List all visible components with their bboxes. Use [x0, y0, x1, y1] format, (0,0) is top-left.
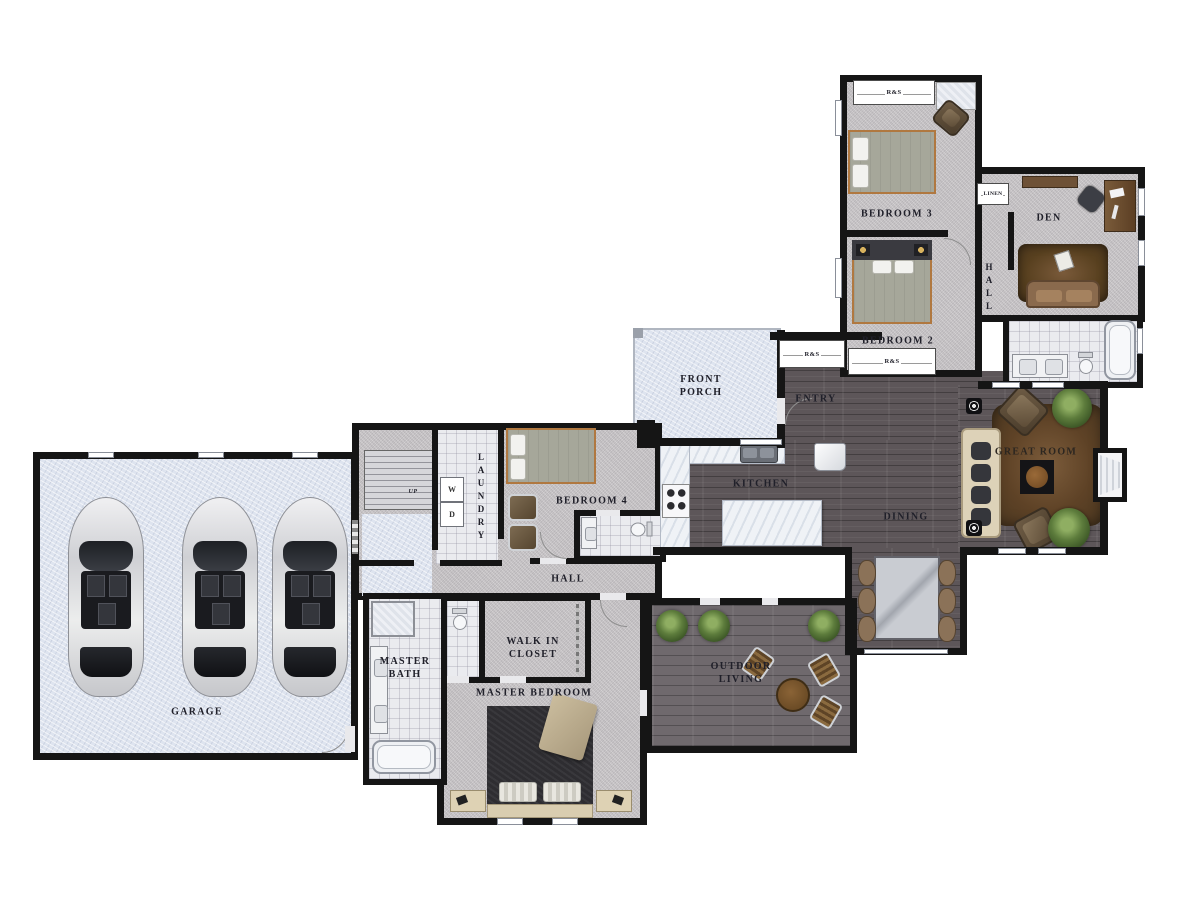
dining-chair — [858, 588, 876, 614]
entry-label: ENTRY — [795, 394, 836, 405]
floor-plan: W D — [0, 0, 1200, 900]
garage-vent2 — [198, 452, 224, 458]
floor-outlet — [966, 520, 982, 536]
outdoor-opening2 — [762, 598, 778, 605]
car-seat — [223, 575, 241, 597]
garage-label: GARAGE — [171, 707, 223, 718]
plant — [1048, 508, 1090, 550]
master-outdoor-door — [640, 690, 647, 716]
headboard-sconce — [914, 244, 928, 256]
master-bedroom-door — [600, 593, 626, 600]
bed-pillow — [510, 434, 526, 456]
upper-bath-sink1 — [1019, 359, 1037, 375]
dining-chair — [858, 560, 876, 586]
bed-pillow — [852, 164, 869, 188]
hall-bath-toilet — [631, 522, 653, 537]
desk-item — [1111, 205, 1118, 220]
bedroom3-closet: R&S — [853, 80, 935, 105]
car-seat — [98, 603, 116, 625]
sofa-cushion — [971, 464, 991, 482]
car-seat — [109, 575, 127, 597]
linen-label: LINEN — [983, 191, 1004, 197]
front-porch-label: FRONT PORCH — [672, 373, 730, 399]
dryer: D — [440, 502, 464, 527]
mud-hall-floor — [362, 514, 432, 596]
dining-right-wall — [960, 547, 967, 655]
nightstand-item — [456, 795, 468, 806]
closet-rod — [576, 604, 579, 674]
car-seat — [212, 603, 230, 625]
hall-bath-sink — [585, 527, 597, 541]
laundry-label: LAUNDRY — [476, 452, 486, 543]
master-headboard — [487, 804, 593, 818]
staircase — [364, 450, 434, 510]
great-room-bottom-wall — [962, 547, 1108, 555]
dining-table — [874, 556, 940, 640]
refrigerator — [814, 443, 846, 471]
nightstand-right — [596, 790, 632, 812]
linen-closet: LINEN — [977, 183, 1009, 205]
outdoor-table — [776, 678, 810, 712]
sofa-cushion — [971, 442, 991, 460]
master-tub — [372, 740, 436, 774]
bedroom4-chair1 — [508, 494, 538, 521]
car-seat — [313, 575, 331, 597]
dining-label: DINING — [883, 512, 928, 523]
den-desk — [1104, 180, 1136, 232]
den-window2 — [1138, 240, 1145, 266]
washer: W — [440, 477, 464, 502]
fireplace — [1093, 448, 1127, 502]
sofa-cushion — [1036, 290, 1062, 302]
bedroom3-bed — [848, 130, 936, 194]
fireplace-hearth — [1100, 455, 1120, 495]
hall-bath-vanity — [581, 517, 597, 549]
car-windshield — [193, 541, 247, 571]
hall-den-wall — [1008, 212, 1014, 270]
car-seat — [87, 575, 105, 597]
bedroom4-door — [540, 558, 566, 564]
stairs-laundry-wall — [432, 428, 438, 550]
master-window1 — [497, 818, 523, 825]
upper-bath-tub — [1104, 320, 1136, 380]
great-room-right-wall-lower — [1100, 498, 1108, 555]
garage-house-opening — [352, 520, 358, 554]
outdoor-living-label: OUTDOOR LIVING — [705, 660, 777, 686]
garage-vent3 — [292, 452, 318, 458]
car-seat — [302, 603, 320, 625]
kitchen-window — [740, 439, 782, 445]
great-room-window-n1 — [992, 382, 1020, 388]
master-window2 — [552, 818, 578, 825]
bedroom4-chair2 — [508, 524, 538, 551]
plant — [808, 610, 840, 642]
headboard-sconce — [856, 244, 870, 256]
plant — [698, 610, 730, 642]
bedroom2-window — [835, 258, 842, 298]
hall-bath-door — [596, 510, 620, 516]
master-bed — [487, 706, 593, 806]
car-cabin — [195, 571, 245, 629]
bedroom2-closet-label: R&S — [883, 358, 902, 365]
car-windshield — [79, 541, 133, 571]
great-room-window-s2 — [1038, 548, 1066, 554]
kitchen-island — [722, 500, 822, 546]
hall-label: HALL — [551, 574, 585, 585]
bedroom4-label: BEDROOM 4 — [556, 496, 628, 507]
kitchen-sink — [740, 445, 778, 463]
car-1 — [68, 497, 144, 697]
den-label: DEN — [1036, 213, 1061, 224]
porch-column — [633, 328, 643, 338]
car-3 — [272, 497, 348, 697]
sink-basin — [743, 448, 757, 458]
dining-chair — [938, 588, 956, 614]
upper-bath-vanity — [1012, 354, 1068, 378]
upper-bath-sink2 — [1045, 359, 1063, 375]
great-room-right-wall-upper — [1100, 381, 1108, 453]
bedroom4-bed — [506, 428, 596, 484]
car-seat — [201, 575, 219, 597]
dining-left-wall — [845, 547, 852, 655]
bed-pillow — [510, 458, 526, 480]
kitchen-label: KITCHEN — [733, 479, 789, 490]
master-pillow1 — [499, 782, 537, 802]
den-console — [1022, 176, 1078, 188]
bedroom3-window — [835, 100, 842, 136]
hall-wall-1 — [352, 560, 414, 566]
desk-papers — [1109, 188, 1124, 199]
garage-side-door — [345, 726, 355, 752]
car-2 — [182, 497, 258, 697]
bedroom3-closet-label: R&S — [885, 89, 904, 96]
car-rear-window — [194, 647, 246, 677]
stove — [662, 484, 690, 518]
coffee-table — [1020, 460, 1054, 494]
master-pillow2 — [543, 782, 581, 802]
dining-chair — [858, 616, 876, 642]
hall-wall-2 — [440, 560, 502, 566]
master-sink2 — [374, 705, 388, 723]
laundry-bedroom4-wall — [498, 423, 504, 539]
bed-pillow — [852, 137, 869, 161]
car-windshield — [283, 541, 337, 571]
den-window1 — [1138, 188, 1145, 216]
great-room-window-s1 — [998, 548, 1026, 554]
car-cabin — [81, 571, 131, 629]
bedroom2-closet: R&S — [848, 348, 936, 375]
master-shower — [371, 601, 415, 637]
wc-door — [447, 676, 469, 683]
dining-chair — [938, 560, 956, 586]
bedrooms-hall-label: HALL — [984, 262, 994, 314]
sofa-cushion — [971, 486, 991, 504]
dining-chair — [938, 616, 956, 642]
walk-in-closet-label: WALK IN CLOSET — [500, 635, 566, 661]
sink-basin — [760, 448, 774, 458]
bedroom3-label: BEDROOM 3 — [861, 209, 933, 220]
garage-vent1 — [88, 452, 114, 458]
wc-toilet — [452, 608, 467, 630]
car-seat — [291, 575, 309, 597]
dining-window — [864, 649, 948, 654]
bed-pillow — [872, 260, 892, 274]
upper-bath-window — [1137, 328, 1143, 354]
bed-pillow — [894, 260, 914, 274]
great-room-label: GREAT ROOM — [995, 447, 1077, 458]
nightstand-left — [450, 790, 486, 812]
wic-door — [500, 676, 526, 683]
car-rear-window — [80, 647, 132, 677]
master-bedroom-label: MASTER BEDROOM — [476, 688, 592, 699]
great-room-window-n2 — [1032, 382, 1064, 388]
car-cabin — [285, 571, 335, 629]
coffee-table-tray — [1026, 466, 1048, 488]
washer-label: W — [448, 485, 456, 494]
master-bath-label: MASTER BATH — [379, 655, 431, 681]
bedroom2-label: BEDROOM 2 — [862, 336, 934, 347]
den-sofa — [1026, 280, 1100, 308]
outdoor-opening1 — [700, 598, 720, 605]
dryer-label: D — [449, 510, 455, 519]
sofa-cushion — [1066, 290, 1092, 302]
kitchen-bottom-wall — [653, 547, 852, 555]
upper-bath-toilet — [1078, 352, 1093, 374]
plant — [656, 610, 688, 642]
front-door-opening — [777, 398, 785, 424]
entry-closet-label: R&S — [803, 351, 822, 358]
entry-closet: R&S — [779, 340, 845, 368]
car-rear-window — [284, 647, 336, 677]
bedroom2-bed — [852, 240, 932, 324]
stairs-up-label: UP — [409, 489, 418, 495]
plant — [1052, 388, 1092, 428]
nightstand-item — [612, 795, 624, 806]
bedroom23-partition — [846, 230, 948, 237]
floor-outlet — [966, 398, 982, 414]
